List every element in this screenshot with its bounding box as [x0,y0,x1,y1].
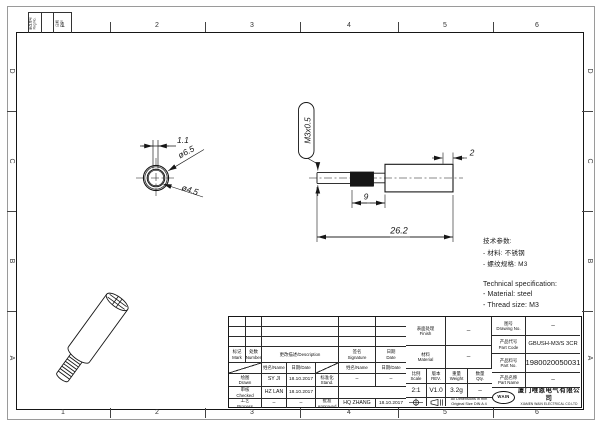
title-block-info-section: 表面处理 Finish – 材料 Material – 比例 Scale 版本 … [406,317,492,406]
part-code-label: 产品代号 Part Code [492,336,526,354]
name-header: 姓名/Name [262,363,287,374]
tech-spec: 技术参数: - 材料: 不锈钢 - 螺纹规格: M3 Technical spe… [483,236,588,311]
rev-empty-cell [376,317,406,327]
company-name-zh: 厦门唯恩电气有限公司 [518,388,580,402]
stand-name: – [339,374,376,387]
rev-empty-cell [376,327,406,337]
rev-empty-cell [262,327,339,337]
scale-label: 比例 Scale [406,369,427,384]
rev-empty-cell [229,337,246,347]
title-block-part-section: 图号 Drawing No. – 产品代号 Part Code GBUSH-M3… [492,317,580,406]
checked-date: 18.10.2017 [287,387,316,399]
drawn-date: 18.10.2017 [287,374,316,387]
material-value: – [446,346,492,369]
dim-inner-text: ø4.5 [180,182,200,197]
drawing-no-value: – [526,317,580,336]
extension-lines [153,140,158,169]
rev-empty-cell [229,317,246,327]
company-name: 厦门唯恩电气有限公司 XIAMEN WAIN ELECTRICAL CO.LTD [518,388,580,406]
cone-symbol-cell [427,398,446,406]
title-block-revision-section: 标记 Mark 处数 Number 更改描述/Description 签名 Si… [229,317,406,406]
part-no-label: 产品料号 Part No. [492,354,526,373]
rev-empty-cell [339,327,376,337]
rev-date-header: 日期 Date [376,347,406,363]
qty-value: – [468,384,492,398]
extension-lines [443,153,453,164]
iso-view [50,290,130,387]
date-header: 日期/Date [287,363,316,374]
rev-number-header: 处数 Number [246,347,262,363]
dim-total-len-text: 26.2 [389,226,408,236]
scale-value: 2:1 [406,384,427,398]
checked-label: 审核 Checked [229,387,262,399]
process-label: 工艺 Process [229,399,262,408]
rev-description-header: 更改描述/Description [262,347,339,363]
approved-date: 18.10.2017 [376,399,406,408]
neck-shank [374,172,386,187]
empty-cell [316,387,339,399]
tech-spec-zh-title: 技术参数: [483,236,588,248]
rev-empty-cell [262,317,339,327]
rev-empty-cell [376,337,406,347]
stand-label: 标准化 Stand. [316,374,339,387]
thread-label-text: M3x0.5 [304,117,313,144]
tech-spec-en-item: - Thread size: M3 [483,301,588,312]
tech-spec-en-item: - Material: steel [483,290,588,301]
company-cell: WAIN 厦门唯恩电气有限公司 XIAMEN WAIN ELECTRICAL C… [492,388,580,406]
stand-date: – [376,374,406,387]
body-sides [68,294,127,362]
rev-signature-header: 签名 Signature [339,347,376,363]
rev-empty-cell [339,317,376,327]
tech-spec-en-title: Technical specification: [483,280,588,291]
part-name-label: 产品名称 Part Name [492,373,526,388]
weight-label: 重量 Weight [446,369,468,384]
rev-empty-cell [246,337,262,347]
dim-outer-text: ø6.5 [176,143,196,160]
qty-label: 数量 Qty. [468,369,492,384]
part-code-value: GBUSH-M3/S 3CR [526,336,580,354]
process-name: – [262,399,287,408]
side-view: M3x0.5 9 26.2 2 [299,103,475,243]
top-view: 1.1 ø6.5 ø4.5 [136,135,204,198]
stud-tip [55,373,68,383]
dim-wall-text: 1.1 [177,135,189,145]
date-header: 日期/Date [376,363,406,374]
first-angle-symbol [408,398,424,406]
extension-lines [352,190,385,208]
company-name-en: XIAMEN WAIN ELECTRICAL CO.LTD [521,403,578,406]
title-block: 标记 Mark 处数 Number 更改描述/Description 签名 Si… [228,316,582,408]
approved-name: HQ ZHANG [339,399,376,408]
part-no-value: 1980020050031 [526,354,580,373]
projection-symbol-cell [406,398,427,406]
rev-empty-cell [339,337,376,347]
material-label: 材料 Material [406,346,446,369]
rev-value: V1.0 [427,384,446,398]
process-date: – [287,399,316,408]
rev-empty-cell [246,317,262,327]
drawing-no-label: 图号 Drawing No. [492,317,526,336]
thread-leader-top [308,159,318,171]
part-name-value: – [526,373,580,388]
rev-empty-cell [229,327,246,337]
cone-symbol [429,398,444,406]
rev-mark-header: 标记 Mark [229,347,246,363]
thread-section [350,172,374,187]
weight-value: 3.2g [446,384,468,398]
name-header: 姓名/Name [339,363,376,374]
dimension-note: All Dimensions in mm Original Size DIN A… [446,398,492,406]
finish-value: – [446,317,492,346]
wain-logo: WAIN [492,391,515,404]
approved-label: 批准 Approved [316,399,339,408]
tech-spec-zh-item: - 材料: 不锈钢 [483,248,588,260]
drawn-label: 绘图 Drawn [229,374,262,387]
dim-thread-len-text: 9 [364,192,369,202]
diagonal-cell [316,363,339,374]
drawing-sheet: 1 2 3 4 5 6 1 2 3 4 5 6 D C B A D C B A … [0,0,600,424]
empty-cell [339,387,406,399]
checked-name: HZ LAN [262,387,287,399]
tech-spec-zh-item: - 螺纹规格: M3 [483,259,588,271]
diagonal-cell [229,363,262,374]
rev-empty-cell [262,337,339,347]
drawn-name: SY JI [262,374,287,387]
dim-step-text: 2 [469,148,475,158]
rev-label: 版本 REV. [427,369,446,384]
finish-label: 表面处理 Finish [406,317,446,346]
rev-empty-cell [246,327,262,337]
